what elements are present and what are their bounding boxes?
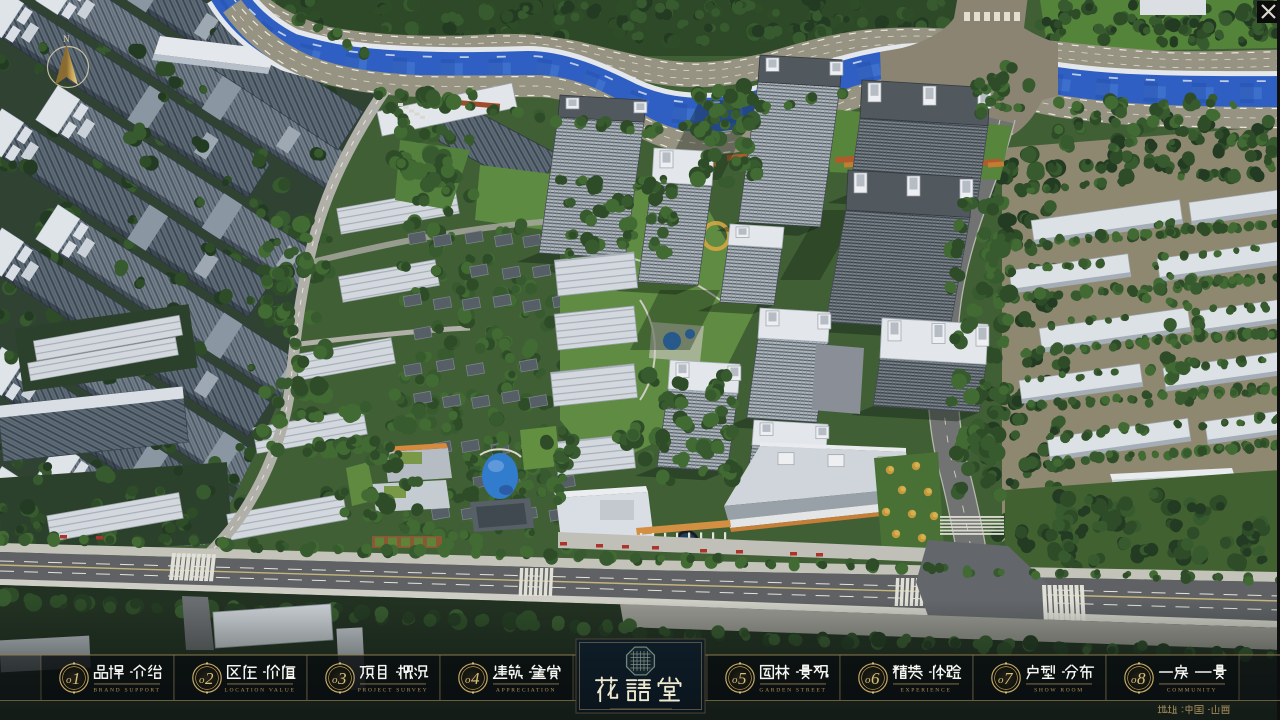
svg-text:PROJECT SURVEY: PROJECT SURVEY <box>358 688 429 694</box>
svg-text:GARDEN STREET: GARDEN STREET <box>759 688 826 694</box>
svg-text:BRAND SUPPORT: BRAND SUPPORT <box>93 688 160 694</box>
svg-text:5: 5 <box>738 669 747 688</box>
svg-text:4: 4 <box>471 669 480 688</box>
svg-text:1: 1 <box>72 669 81 688</box>
svg-text:LOCATION VALUE: LOCATION VALUE <box>224 688 295 694</box>
svg-text:EXPERIENCE: EXPERIENCE <box>900 688 951 694</box>
svg-text:6: 6 <box>871 669 880 688</box>
svg-text:APPRECIATION: APPRECIATION <box>496 688 556 694</box>
svg-text:2: 2 <box>205 669 214 688</box>
svg-text:3: 3 <box>337 669 347 688</box>
